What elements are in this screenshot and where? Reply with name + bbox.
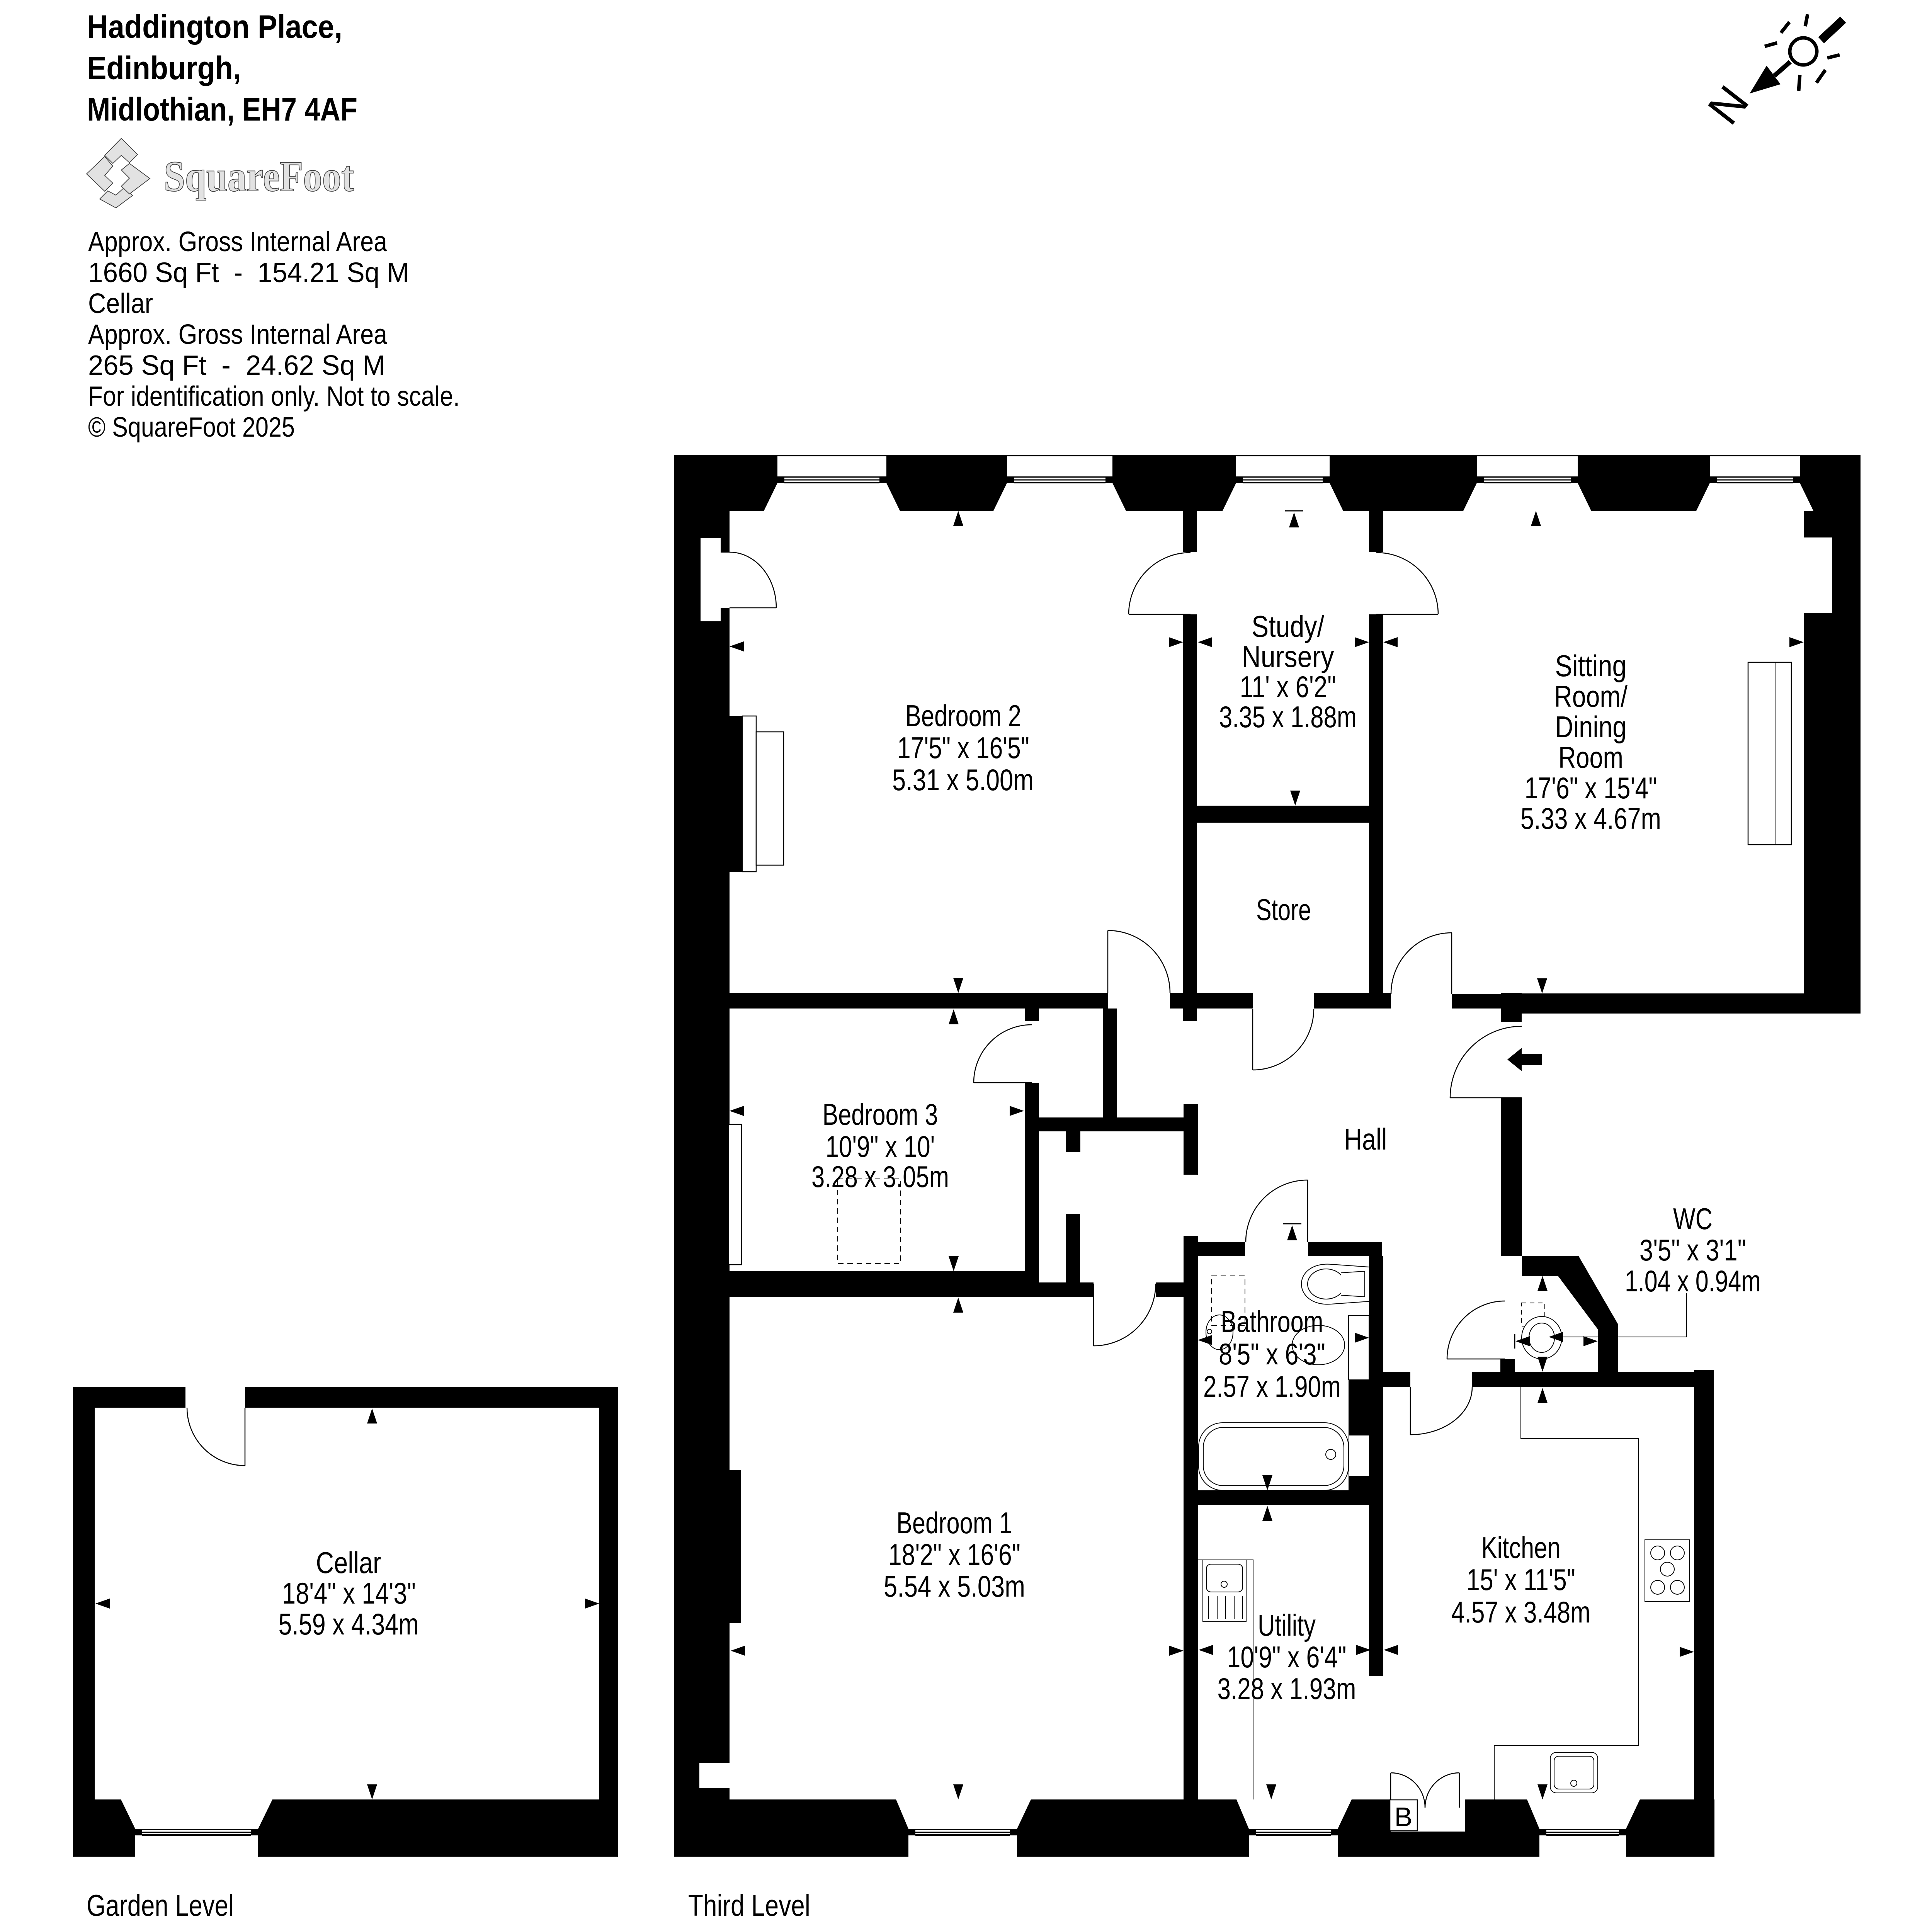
svg-text:1.04 x 0.94m: 1.04 x 0.94m bbox=[1625, 1264, 1761, 1298]
svg-text:10'9" x 6'4": 10'9" x 6'4" bbox=[1227, 1640, 1347, 1674]
svg-text:Room: Room bbox=[1558, 740, 1623, 774]
svg-text:Hall: Hall bbox=[1344, 1122, 1387, 1156]
svg-text:Bedroom 3: Bedroom 3 bbox=[823, 1097, 938, 1131]
svg-text:5.59 x 4.34m: 5.59 x 4.34m bbox=[279, 1607, 419, 1641]
svg-text:B: B bbox=[1395, 1802, 1413, 1832]
svg-text:2.57 x 1.90m: 2.57 x 1.90m bbox=[1203, 1369, 1341, 1403]
svg-text:3.28 x 1.93m: 3.28 x 1.93m bbox=[1218, 1672, 1356, 1706]
svg-text:For identification only. Not t: For identification only. Not to scale. bbox=[88, 381, 460, 412]
svg-text:Approx. Gross Internal Area: Approx. Gross Internal Area bbox=[88, 226, 388, 257]
svg-text:5.54 x 5.03m: 5.54 x 5.03m bbox=[884, 1569, 1025, 1603]
svg-text:Utility: Utility bbox=[1258, 1608, 1316, 1642]
svg-text:Midlothian, EH7 4AF: Midlothian, EH7 4AF bbox=[87, 91, 357, 128]
svg-text:Dining: Dining bbox=[1555, 710, 1627, 744]
svg-text:Cellar: Cellar bbox=[88, 288, 153, 319]
svg-text:5.33 x 4.67m: 5.33 x 4.67m bbox=[1520, 801, 1661, 835]
svg-text:SquareFoot: SquareFoot bbox=[164, 153, 354, 201]
svg-text:Cellar: Cellar bbox=[316, 1546, 381, 1580]
svg-text:Bathroom: Bathroom bbox=[1221, 1304, 1323, 1338]
svg-text:Room/: Room/ bbox=[1554, 679, 1628, 713]
svg-text:Approx. Gross Internal Area: Approx. Gross Internal Area bbox=[88, 319, 388, 350]
svg-text:11' x 6'2": 11' x 6'2" bbox=[1240, 670, 1336, 704]
svg-text:17'6" x 15'4": 17'6" x 15'4" bbox=[1525, 771, 1657, 805]
svg-text:Study/: Study/ bbox=[1252, 609, 1324, 643]
svg-text:8'5" x 6'3": 8'5" x 6'3" bbox=[1219, 1337, 1325, 1371]
svg-text:Bedroom 2: Bedroom 2 bbox=[905, 699, 1021, 733]
svg-text:Third Level: Third Level bbox=[688, 1888, 810, 1922]
svg-text:265 Sq Ft - 24.62 Sq M: 265 Sq Ft - 24.62 Sq M bbox=[88, 350, 385, 381]
svg-text:WC: WC bbox=[1673, 1202, 1713, 1236]
svg-text:Nursery: Nursery bbox=[1242, 639, 1334, 673]
svg-text:Edinburgh,: Edinburgh, bbox=[87, 50, 241, 86]
svg-text:1660 Sq Ft - 154.21 Sq M: 1660 Sq Ft - 154.21 Sq M bbox=[88, 257, 409, 288]
svg-text:Sitting: Sitting bbox=[1555, 649, 1627, 683]
svg-text:Store: Store bbox=[1256, 893, 1311, 927]
svg-text:4.57 x 3.48m: 4.57 x 3.48m bbox=[1451, 1595, 1590, 1629]
svg-text:18'2" x 16'6": 18'2" x 16'6" bbox=[888, 1537, 1020, 1571]
svg-text:3.28 x 3.05m: 3.28 x 3.05m bbox=[811, 1160, 949, 1194]
svg-text:5.31 x 5.00m: 5.31 x 5.00m bbox=[892, 763, 1034, 797]
svg-text:© SquareFoot 2025: © SquareFoot 2025 bbox=[88, 412, 295, 443]
svg-text:Haddington Place,: Haddington Place, bbox=[87, 9, 342, 45]
svg-text:17'5" x 16'5": 17'5" x 16'5" bbox=[897, 731, 1029, 765]
svg-text:Bedroom 1: Bedroom 1 bbox=[896, 1506, 1012, 1540]
svg-text:3.35 x 1.88m: 3.35 x 1.88m bbox=[1219, 700, 1357, 734]
svg-text:Kitchen: Kitchen bbox=[1481, 1531, 1561, 1565]
svg-text:18'4" x 14'3": 18'4" x 14'3" bbox=[282, 1576, 416, 1610]
svg-text:15' x 11'5": 15' x 11'5" bbox=[1466, 1563, 1575, 1597]
svg-text:Garden Level: Garden Level bbox=[87, 1888, 234, 1922]
svg-text:10'9" x 10': 10'9" x 10' bbox=[826, 1129, 935, 1163]
svg-text:3'5" x 3'1": 3'5" x 3'1" bbox=[1639, 1233, 1746, 1267]
